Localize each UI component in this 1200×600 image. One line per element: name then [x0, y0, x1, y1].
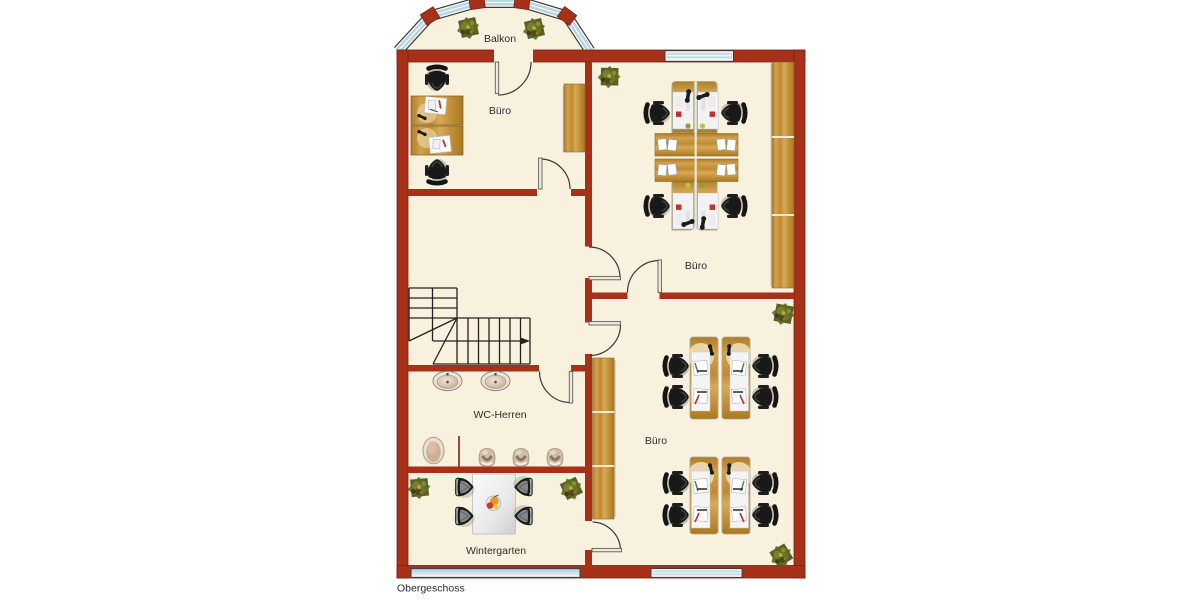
svg-text:Büro: Büro — [685, 260, 707, 272]
svg-text:Balkon: Balkon — [484, 33, 516, 45]
svg-text:Büro: Büro — [489, 105, 511, 117]
svg-text:Obergeschoss: Obergeschoss — [397, 583, 465, 595]
svg-text:Wintergarten: Wintergarten — [466, 545, 526, 557]
svg-text:Büro: Büro — [645, 435, 667, 447]
svg-text:WC-Herren: WC-Herren — [473, 409, 526, 421]
